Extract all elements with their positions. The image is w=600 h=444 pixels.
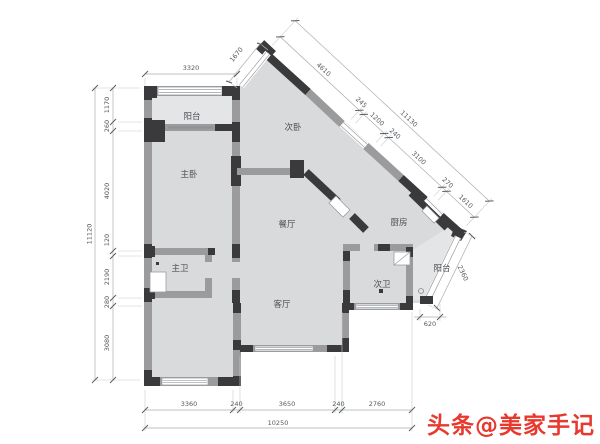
dim-bottom-2: 3650 — [279, 400, 296, 408]
dim-left-3: 120 — [103, 234, 111, 246]
dim-left-total: 11120 — [86, 224, 94, 245]
sink-fixture — [394, 252, 410, 265]
floor-plan-canvas: 阳台 主卧 次卧 餐厅 厨房 主卫 次卫 客厅 阳台 1170 260 — [0, 0, 600, 444]
room-label-master-bedroom: 主卧 — [180, 169, 198, 180]
dim-left-6: 3080 — [103, 335, 111, 352]
room-label-balcony-bottom: 阳台 — [433, 263, 450, 274]
dimensions-left: 1170 260 4020 120 2190 280 3080 11120 — [86, 85, 143, 383]
dim-left-2: 4020 — [103, 183, 111, 200]
dim-top-width: 3320 — [183, 64, 200, 72]
dim-ne-total: 11130 — [399, 109, 420, 129]
dim-left-5: 280 — [103, 296, 111, 308]
floor-areas — [145, 50, 462, 386]
room-label-balcony-top: 阳台 — [183, 111, 200, 122]
dim-se-balcony: 2360 — [456, 264, 470, 282]
dim-left-0: 1170 — [103, 97, 111, 114]
dim-bottom-4: 2760 — [369, 400, 386, 408]
dim-ne-2: 1200 — [368, 111, 386, 128]
room-label-kitchen: 厨房 — [390, 217, 407, 228]
dim-ne-0: 4610 — [315, 61, 333, 78]
dim-bottom-0: 3360 — [181, 400, 198, 408]
shower-fixture — [150, 272, 166, 292]
drain-dot-master-bath — [156, 262, 159, 265]
dim-bottom-1: 240 — [230, 400, 242, 408]
watermark-text: 头条@美家手记 — [427, 406, 595, 440]
dim-left-4: 2190 — [103, 269, 111, 286]
room-label-dining: 餐厅 — [278, 220, 296, 230]
room-label-second-bath: 次卫 — [373, 279, 391, 290]
dim-bottom-total: 10250 — [268, 419, 289, 427]
dim-ne-6: 1610 — [457, 193, 475, 210]
dim-bottom-3: 240 — [332, 400, 344, 408]
dim-step: 620 — [424, 320, 436, 328]
dim-entry: 1670 — [228, 46, 245, 64]
floor-plan-drawing: 阳台 主卧 次卧 餐厅 厨房 主卫 次卫 客厅 阳台 1170 260 — [0, 0, 600, 444]
room-label-master-bath: 主卫 — [171, 263, 189, 274]
dim-ne-4: 3100 — [410, 149, 428, 166]
room-label-second-bedroom: 次卧 — [284, 122, 302, 133]
dim-left-1: 260 — [103, 120, 111, 132]
room-label-living: 客厅 — [273, 299, 291, 310]
